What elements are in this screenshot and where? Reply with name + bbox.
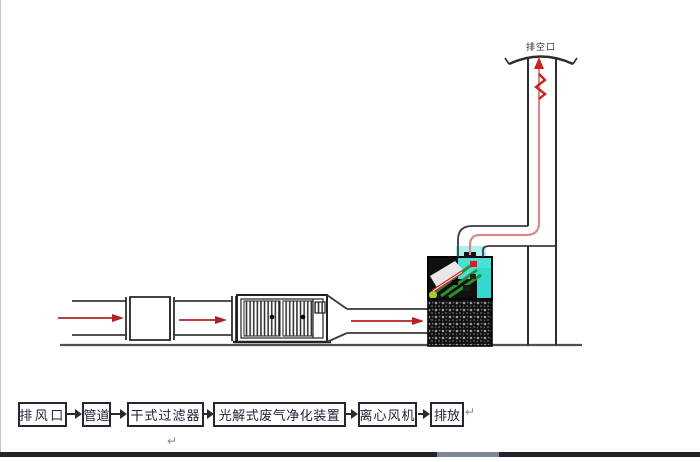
flow-step-discharge: 排放 xyxy=(430,402,464,427)
page-bottom-rule xyxy=(0,452,700,457)
middle-duct xyxy=(174,296,236,341)
reducer-cone xyxy=(327,295,347,342)
flow-arrow-icon xyxy=(418,413,428,415)
flow-arrow-icon xyxy=(111,413,125,415)
photolysis-purifier-unit xyxy=(428,246,492,346)
flow-squiggle xyxy=(536,74,545,99)
right-arrow-icon xyxy=(215,316,227,324)
exhaust-stack xyxy=(505,57,577,346)
filter-vent-icon xyxy=(315,302,325,313)
flow-arrow-icon xyxy=(67,413,80,415)
flange-right xyxy=(170,297,174,340)
return-mark: ↵ xyxy=(465,405,475,419)
filter-slats-right xyxy=(283,301,313,336)
flow-step-centrifugal-fan: 离心风机 xyxy=(358,402,417,427)
right-arrow-icon xyxy=(412,317,424,325)
flow-step-pipe: 管道 xyxy=(82,402,111,427)
filter-slats-left xyxy=(244,301,280,336)
uv-lamp-photo xyxy=(428,257,492,299)
page-left-border xyxy=(0,0,1,452)
filter-knob-icon xyxy=(301,315,306,320)
flow-step-exhaust-inlet: 排风口 xyxy=(18,402,67,427)
filter-knob-icon xyxy=(270,315,275,320)
dry-filter-unit xyxy=(233,295,331,342)
carbon-filter-section xyxy=(428,299,492,346)
return-mark: ↵ xyxy=(167,434,177,448)
page-bottom-rule-highlight xyxy=(437,452,499,457)
stack-outlet-label: 排空口 xyxy=(526,41,556,53)
flow-arrow-icon xyxy=(203,413,212,415)
duct-connector-box xyxy=(126,297,174,340)
flow-arrow-icon xyxy=(346,413,356,415)
flow-step-dry-filter: 干式过滤器 xyxy=(127,402,204,427)
flow-step-photolysis-purifier: 光解式废气净化装置 xyxy=(213,402,346,427)
up-arrow-icon xyxy=(534,57,544,69)
connector-body xyxy=(130,297,170,340)
process-diagram: 排空口 xyxy=(0,0,700,462)
screenshot-canvas: 排空口 排风口 管道 干式过滤器 光解式废气净化装置 离心风机 排放 ↵ ↵ xyxy=(0,0,700,462)
right-arrow-icon xyxy=(112,314,124,322)
